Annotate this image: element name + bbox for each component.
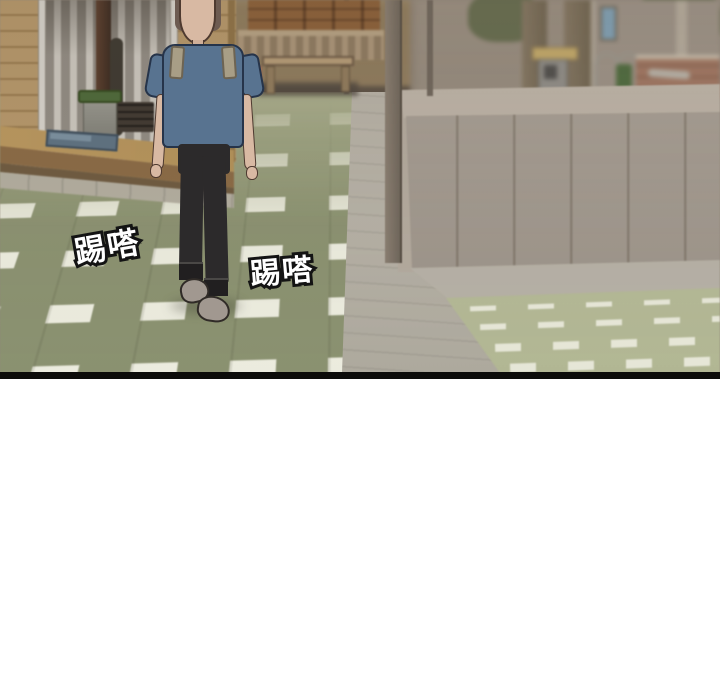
shoe	[195, 294, 231, 324]
backpack-strap	[221, 46, 237, 80]
bench-leg	[341, 66, 350, 92]
sfx-footstep-2: 踢嗒	[248, 244, 316, 293]
hand	[246, 166, 258, 180]
head	[179, 0, 216, 44]
panel-bottom-border	[0, 372, 720, 379]
pants-leg	[202, 156, 228, 283]
page-white-margin	[0, 379, 720, 700]
kiosk-screen	[544, 65, 557, 79]
thin-pole	[427, 0, 433, 96]
walking-person	[146, 0, 264, 332]
backpack-strap	[169, 46, 185, 80]
pants-leg	[179, 156, 204, 266]
wooden-crates	[248, 0, 380, 30]
comic-panel: 踢嗒 踢嗒	[0, 0, 720, 379]
bench-leg	[266, 66, 275, 94]
comic-page: 踢嗒 踢嗒	[0, 0, 720, 700]
building-window	[600, 6, 617, 41]
bench	[262, 56, 354, 66]
hand	[150, 164, 162, 178]
street-pole	[385, 0, 402, 263]
trash-bin-lid	[78, 90, 122, 103]
